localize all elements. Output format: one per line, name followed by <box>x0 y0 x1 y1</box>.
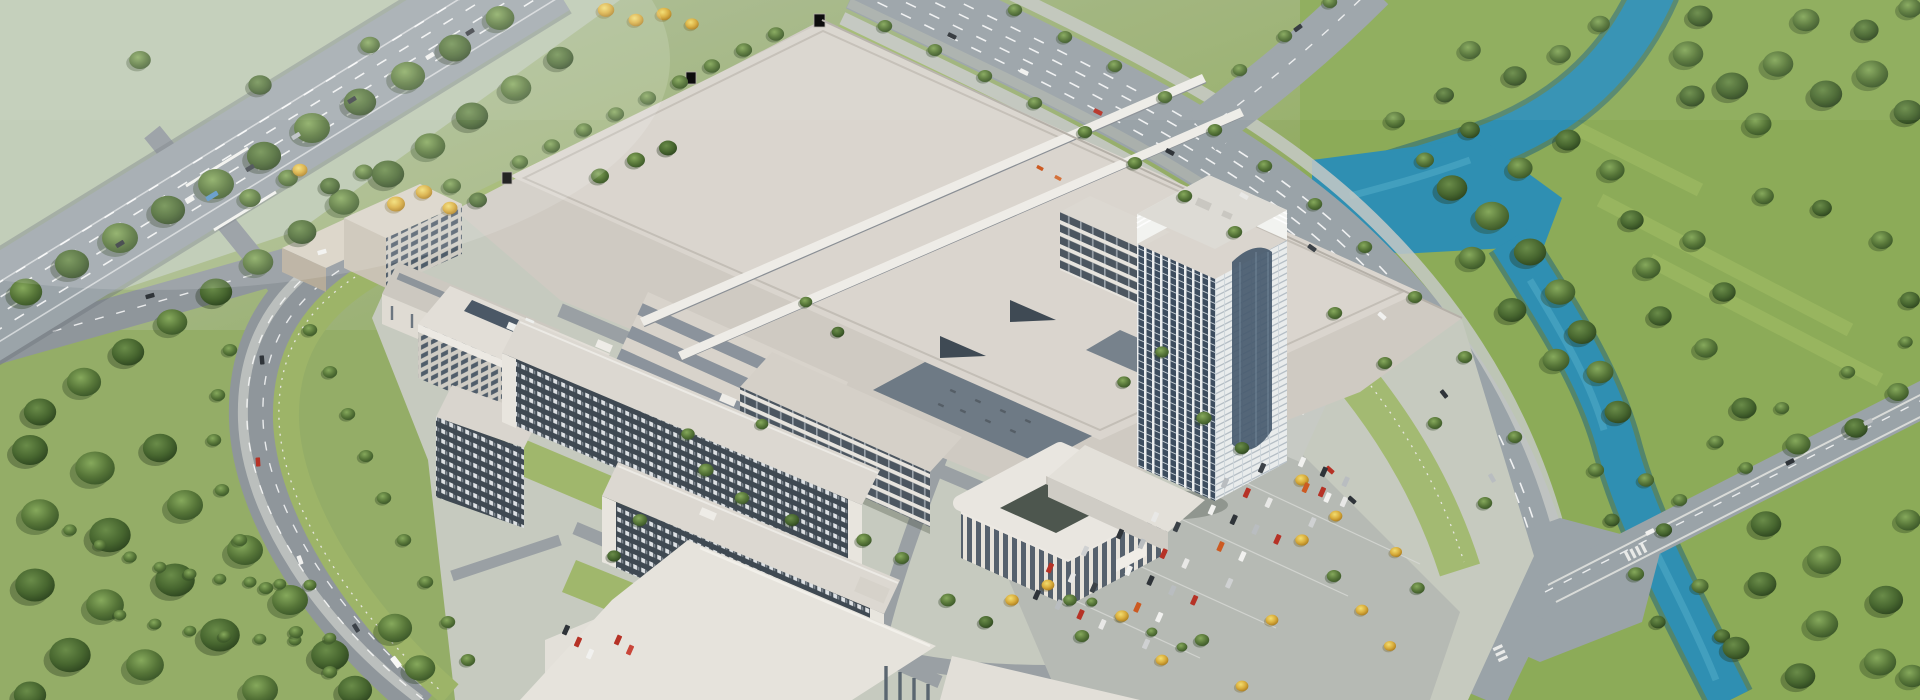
campus-aerial-rendering: Aerial rendering of a manufacturing camp… <box>0 0 1920 700</box>
stair-core <box>502 353 516 428</box>
tower-glass-curtain <box>1232 248 1272 451</box>
haze-top <box>0 0 1920 120</box>
aerial-render-canvas: Aerial rendering of a manufacturing camp… <box>0 0 1920 700</box>
car <box>259 355 264 364</box>
car <box>255 457 260 466</box>
tower-facade-southwest <box>1137 244 1215 501</box>
